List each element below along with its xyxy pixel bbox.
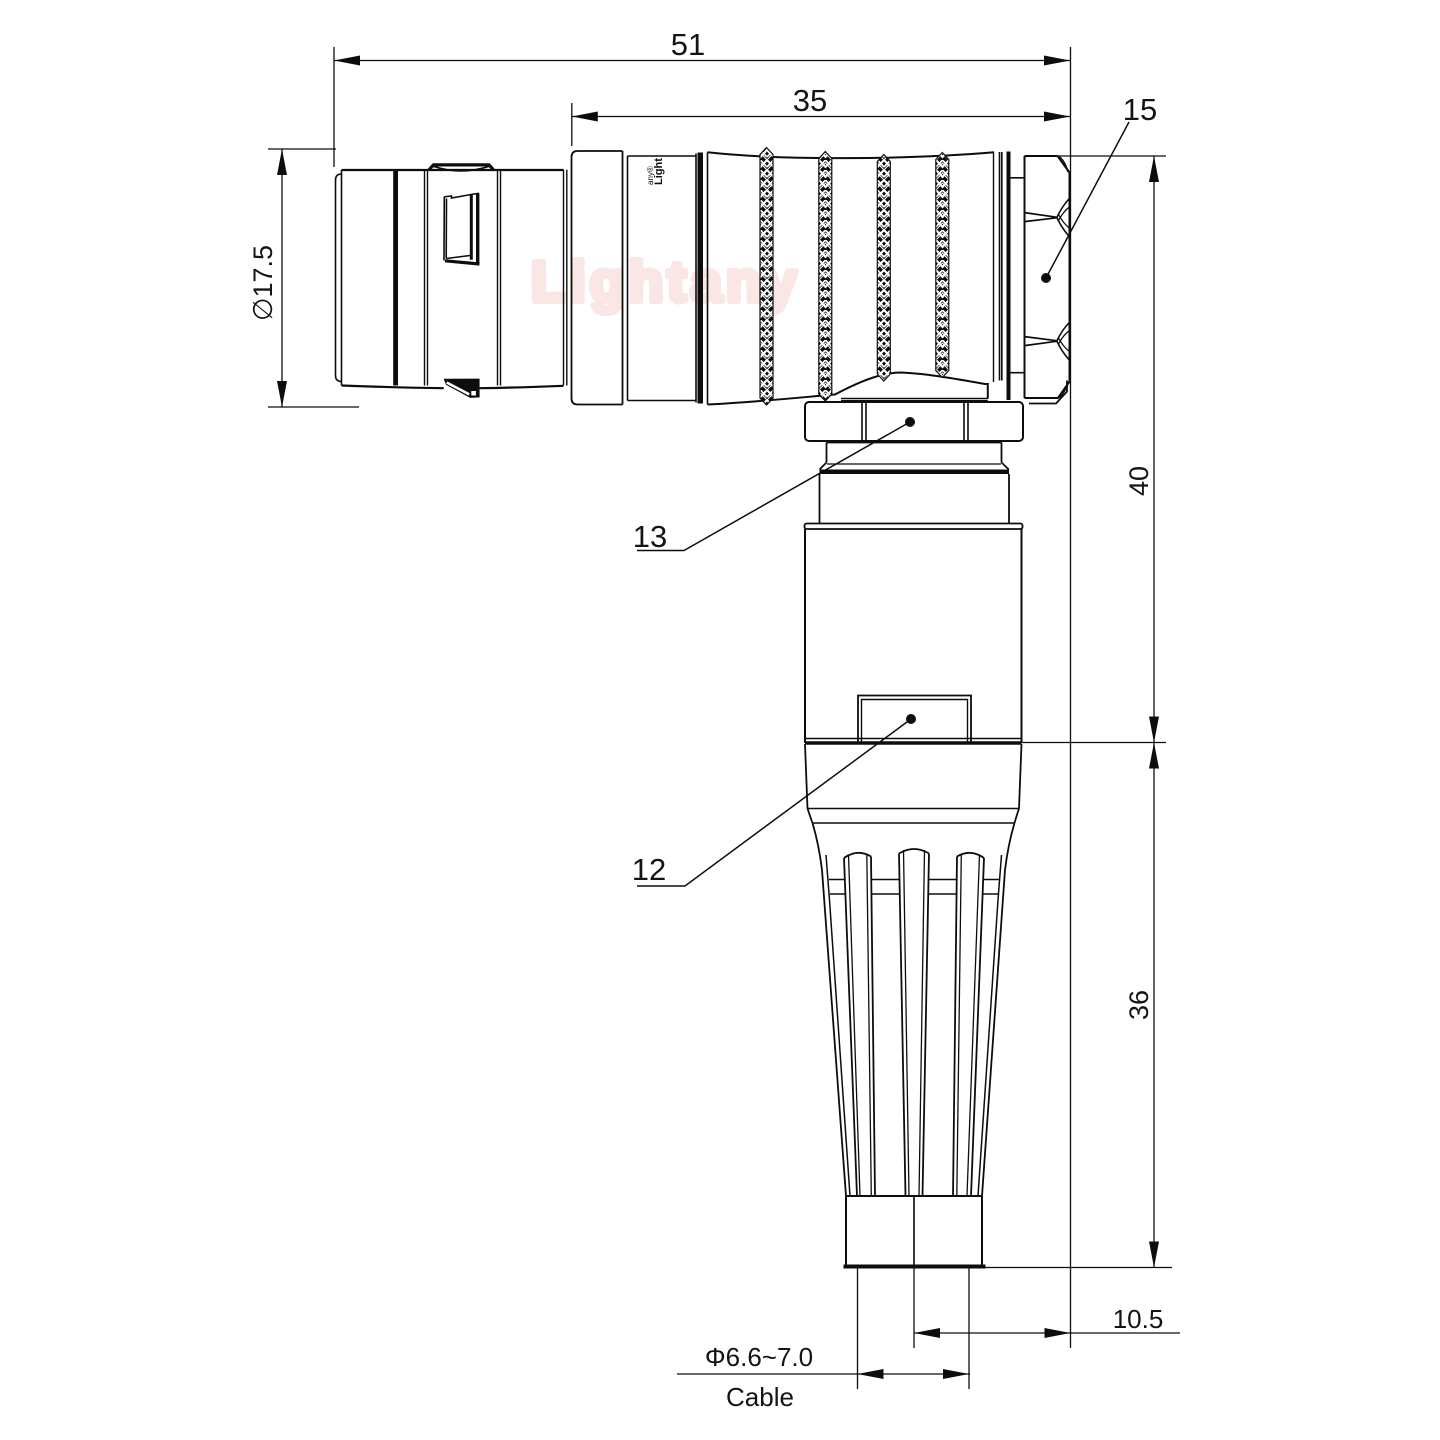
svg-text:15: 15 — [1123, 92, 1157, 127]
svg-text:any®: any® — [646, 166, 655, 185]
svg-text:12: 12 — [632, 852, 666, 887]
svg-text:∅17.5: ∅17.5 — [248, 245, 278, 321]
svg-text:Φ6.6~7.0: Φ6.6~7.0 — [705, 1342, 813, 1372]
svg-text:40: 40 — [1124, 466, 1154, 496]
svg-text:35: 35 — [793, 83, 827, 118]
svg-text:51: 51 — [671, 27, 705, 62]
svg-text:36: 36 — [1124, 990, 1154, 1020]
svg-text:Cable: Cable — [726, 1382, 794, 1412]
svg-text:10.5: 10.5 — [1113, 1304, 1164, 1334]
svg-text:13: 13 — [633, 519, 667, 554]
